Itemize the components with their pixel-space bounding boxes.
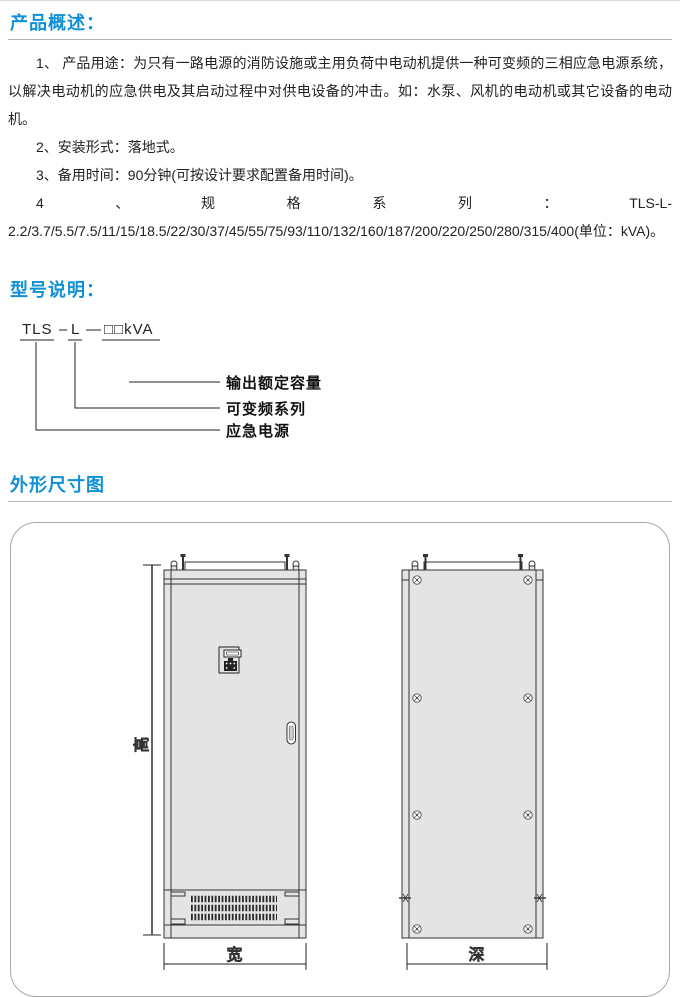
eye-bolt-icon: [529, 561, 535, 570]
height-dimension-label: 高: [133, 735, 151, 752]
lifting-bar: [181, 554, 290, 570]
callout-label-series: 可变频系列: [226, 400, 306, 418]
dimension-drawing-panel: 高: [10, 522, 670, 997]
overview-paragraphs: 1、 产品用途：为只有一路电源的消防设施或主用负荷中电动机提供一种可变频的三相应…: [8, 49, 672, 245]
callout-lines: [36, 342, 220, 430]
model-code-variant: L: [71, 321, 80, 338]
cabinet-front-body: [164, 570, 306, 938]
front-view-drawing: 高: [133, 554, 306, 970]
eye-bolt-icon: [293, 561, 299, 570]
model-code: TLS – L — □□kVA: [20, 321, 160, 340]
screw-icon: [524, 811, 532, 819]
eye-bolt-icon: [171, 561, 177, 570]
section-title-model: 型号说明：: [8, 278, 672, 302]
control-panel-icon: [219, 647, 241, 673]
section-divider: [8, 39, 672, 40]
cabinet-side-strip-right: [536, 570, 543, 938]
model-code-capacity: □□kVA: [104, 321, 154, 338]
screw-icon: [413, 694, 421, 702]
outline-dimension-drawing: 高: [11, 523, 669, 996]
model-code-dash2: —: [86, 321, 102, 338]
lifting-bar: [423, 554, 523, 570]
screw-icon: [524, 576, 532, 584]
model-designation-diagram: TLS – L — □□kVA 输出额定容量 可变频系列 应急电源: [8, 318, 672, 446]
screw-icon: [413, 576, 421, 584]
depth-dimension-label: 深: [468, 946, 485, 964]
width-dimension-label: 宽: [226, 946, 243, 964]
screw-icon: [524, 694, 532, 702]
model-code-dash1: –: [59, 321, 68, 338]
page-content: 产品概述： 1、 产品用途：为只有一路电源的消防设施或主用负荷中电动机提供一种可…: [0, 11, 680, 502]
screw-icon: [524, 925, 532, 933]
callout-label-capacity: 输出额定容量: [226, 374, 322, 392]
door-handle: [287, 722, 296, 744]
callout-label-eps: 应急电源: [226, 422, 290, 440]
side-view-drawing: 深: [399, 554, 547, 970]
overview-paragraph-backup-time: 3、备用时间：90分钟(可按设计要求配置备用时间)。: [8, 161, 672, 189]
cabinet-side-strip-left: [402, 570, 409, 938]
section-divider: [8, 501, 672, 502]
model-code-series: TLS: [22, 321, 53, 338]
section-title-dimensions: 外形尺寸图: [8, 473, 672, 497]
datasheet-page: 产品概述： 1、 产品用途：为只有一路电源的消防设施或主用负荷中电动机提供一种可…: [0, 0, 680, 977]
screw-icon: [413, 811, 421, 819]
overview-paragraph-spec-series: 4、规格系列：TLS-L-2.2/3.7/5.5/7.5/11/15/18.5/…: [8, 189, 672, 245]
callout-line-variant: [75, 342, 220, 408]
callout-line-eps: [36, 342, 220, 430]
eye-bolt-icon: [412, 561, 418, 570]
overview-paragraph-installation: 2、安装形式：落地式。: [8, 133, 672, 161]
overview-paragraph-usage: 1、 产品用途：为只有一路电源的消防设施或主用负荷中电动机提供一种可变频的三相应…: [8, 49, 672, 133]
screw-icon: [413, 925, 421, 933]
section-title-overview: 产品概述：: [8, 11, 672, 35]
cabinet-side-body: [409, 570, 536, 938]
